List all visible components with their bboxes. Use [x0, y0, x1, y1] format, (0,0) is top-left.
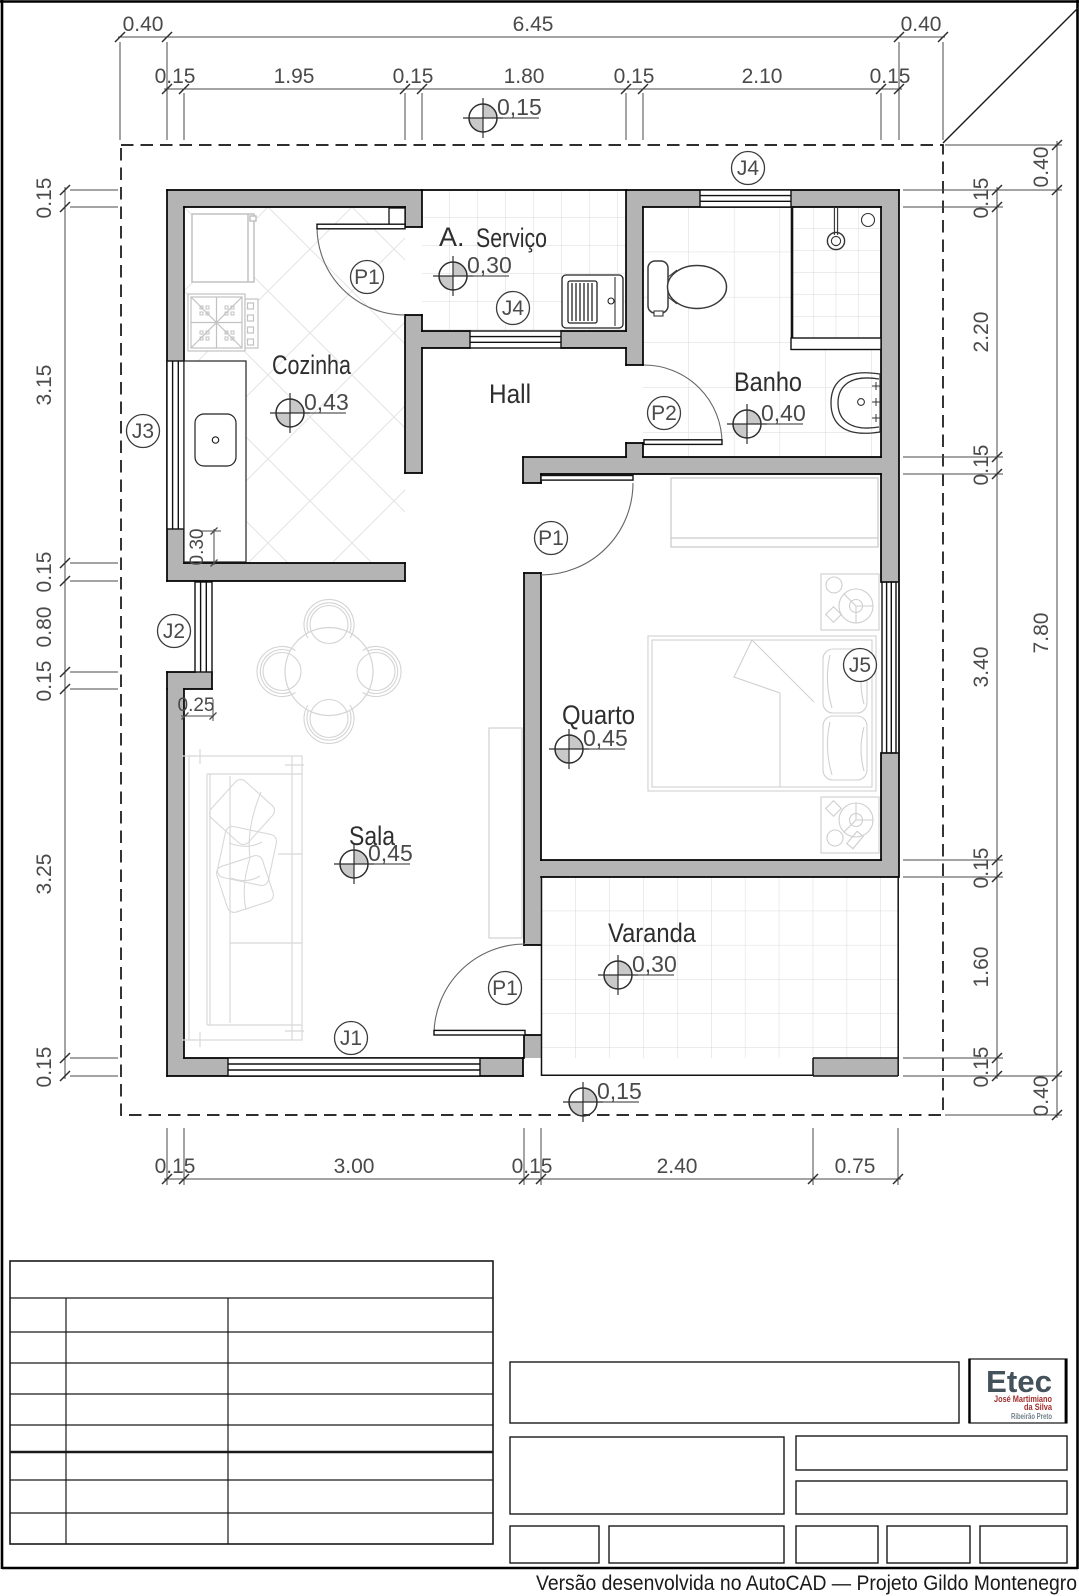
svg-text:0.15: 0.15 [33, 661, 56, 702]
svg-text:0,40: 0,40 [761, 400, 806, 426]
svg-text:Versão desenvolvida no AutoCAD: Versão desenvolvida no AutoCAD — Projeto… [536, 1572, 1077, 1595]
svg-text:1.95: 1.95 [274, 65, 315, 88]
svg-text:P2: P2 [651, 402, 677, 425]
svg-text:0.15: 0.15 [155, 65, 196, 88]
svg-text:2.10: 2.10 [742, 65, 783, 88]
svg-text:J4: J4 [502, 297, 525, 320]
svg-text:1.80: 1.80 [504, 65, 545, 88]
svg-text:Banho: Banho [734, 367, 802, 397]
svg-text:P1: P1 [354, 266, 380, 289]
svg-text:Cozinha: Cozinha [272, 350, 352, 380]
svg-text:0.15: 0.15 [614, 65, 655, 88]
svg-text:0.15: 0.15 [970, 178, 993, 219]
svg-text:J4: J4 [737, 157, 760, 180]
svg-text:0.15: 0.15 [970, 848, 993, 889]
svg-text:0,15: 0,15 [497, 94, 542, 120]
svg-text:0.25: 0.25 [178, 695, 215, 716]
svg-text:Hall: Hall [489, 379, 531, 409]
svg-text:Quarto: Quarto [562, 700, 635, 730]
svg-text:J5: J5 [849, 654, 871, 677]
svg-text:A.: A. [439, 222, 465, 252]
svg-text:J2: J2 [163, 620, 185, 643]
svg-text:0.75: 0.75 [835, 1155, 876, 1178]
svg-text:Sala: Sala [349, 821, 396, 851]
svg-text:Ribeirão Preto: Ribeirão Preto [1011, 1412, 1052, 1421]
svg-text:0.15: 0.15 [393, 65, 434, 88]
svg-text:J1: J1 [340, 1027, 362, 1050]
svg-text:0.15: 0.15 [33, 1047, 56, 1088]
svg-text:0,15: 0,15 [597, 1078, 642, 1104]
svg-text:da Silva: da Silva [1024, 1402, 1053, 1412]
svg-text:1.60: 1.60 [970, 947, 993, 988]
svg-text:7.80: 7.80 [1030, 613, 1053, 654]
svg-text:2.20: 2.20 [970, 312, 993, 353]
svg-text:0.30: 0.30 [187, 529, 208, 566]
svg-text:0.40: 0.40 [1030, 147, 1053, 188]
svg-text:6.45: 6.45 [513, 13, 554, 36]
svg-text:0,30: 0,30 [632, 951, 677, 977]
svg-text:3.00: 3.00 [334, 1155, 375, 1178]
svg-text:Varanda: Varanda [608, 918, 697, 948]
svg-text:0.40: 0.40 [123, 13, 164, 36]
svg-text:2.40: 2.40 [657, 1155, 698, 1178]
svg-text:0.15: 0.15 [970, 1047, 993, 1088]
svg-text:0,43: 0,43 [304, 389, 349, 415]
svg-text:3.40: 3.40 [970, 647, 993, 688]
svg-text:0.15: 0.15 [33, 552, 56, 593]
svg-text:0.40: 0.40 [901, 13, 942, 36]
svg-text:3.15: 3.15 [33, 365, 56, 406]
svg-text:0.80: 0.80 [33, 607, 56, 648]
svg-text:0.15: 0.15 [970, 445, 993, 486]
svg-text:3.25: 3.25 [33, 854, 56, 895]
svg-text:0.15: 0.15 [870, 65, 911, 88]
svg-text:0.15: 0.15 [33, 178, 56, 219]
svg-text:0.15: 0.15 [512, 1155, 553, 1178]
svg-text:J3: J3 [132, 420, 154, 443]
svg-text:P1: P1 [492, 977, 518, 1000]
svg-text:P1: P1 [538, 527, 564, 550]
svg-text:0.15: 0.15 [155, 1155, 196, 1178]
svg-text:Serviço: Serviço [476, 223, 547, 253]
svg-text:0.40: 0.40 [1030, 1076, 1053, 1117]
svg-text:0,30: 0,30 [467, 252, 512, 278]
